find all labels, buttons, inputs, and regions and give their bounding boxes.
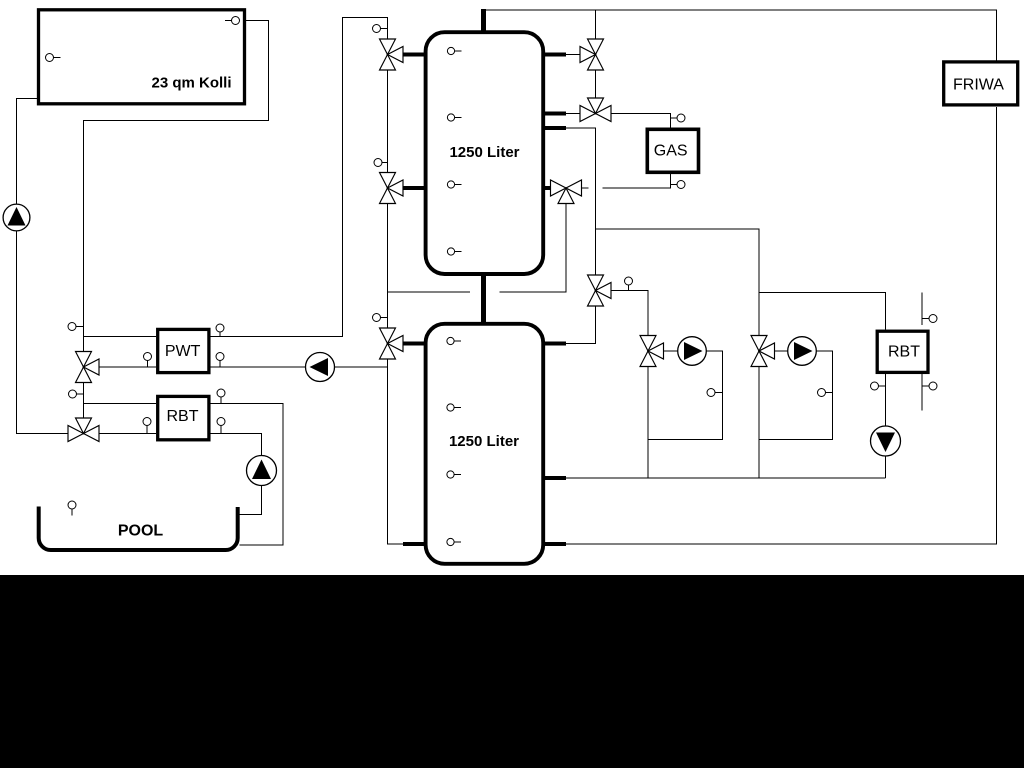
svg-text:GAS: GAS — [654, 143, 688, 160]
svg-text:POOL: POOL — [118, 523, 164, 540]
svg-text:1250 Liter: 1250 Liter — [449, 144, 519, 161]
svg-text:PWT: PWT — [165, 343, 201, 360]
svg-text:RBT: RBT — [167, 408, 199, 425]
svg-text:23 qm Kolli: 23 qm Kolli — [151, 75, 231, 92]
svg-text:1250 Liter: 1250 Liter — [449, 433, 519, 450]
svg-text:FRIWA: FRIWA — [953, 76, 1004, 93]
svg-text:RBT: RBT — [888, 344, 920, 361]
